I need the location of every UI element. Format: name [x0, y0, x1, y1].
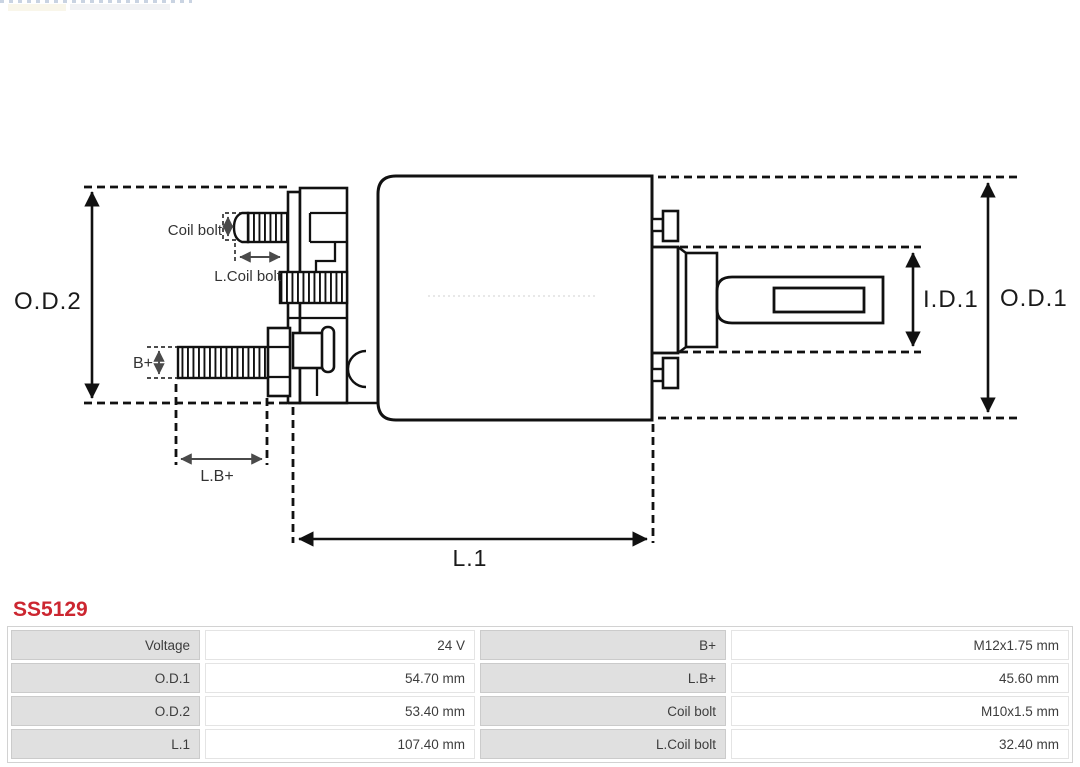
spec-label-coil-bolt: Coil bolt	[480, 696, 726, 726]
spec-value-coil-bolt: M10x1.5 mm	[731, 696, 1069, 726]
lcoil-bolt-thread	[280, 272, 347, 303]
product-drawing-page: O.D.2 O.D.1 I.D.1 L.1 Coil bolt L.Coil b…	[0, 0, 1080, 767]
spec-value-voltage: 24 V	[205, 630, 475, 660]
plunger-slot	[774, 288, 864, 312]
spec-label-lbplus: L.B+	[480, 663, 726, 693]
coil-bolt-head	[234, 213, 248, 242]
bplus-label: B+	[133, 355, 153, 372]
lcoil-bolt-label: L.Coil bolt	[214, 268, 282, 285]
bplus-nut	[268, 328, 290, 396]
spec-value-lbplus: 45.60 mm	[731, 663, 1069, 693]
spec-label-od1: O.D.1	[11, 663, 200, 693]
solenoid-part	[178, 176, 883, 420]
terminal-top-inner	[652, 219, 663, 231]
terminal-bottom-outer	[663, 358, 678, 388]
spec-label-bplus: B+	[480, 630, 726, 660]
solenoid-body	[378, 176, 652, 420]
spec-value-lcoil-bolt: 32.40 mm	[731, 729, 1069, 759]
solenoid-technical-drawing: O.D.2 O.D.1 I.D.1 L.1 Coil bolt L.Coil b…	[0, 0, 1080, 596]
table-row: O.D.2 53.40 mm Coil bolt M10x1.5 mm	[11, 696, 1069, 726]
spec-value-l1: 107.40 mm	[205, 729, 475, 759]
id1-label: I.D.1	[923, 286, 979, 313]
spec-label-l1: L.1	[11, 729, 200, 759]
terminal-top-outer	[663, 211, 678, 241]
table-row: Voltage 24 V B+ M12x1.75 mm	[11, 630, 1069, 660]
terminal-bottom-inner	[652, 369, 663, 381]
table-row: O.D.1 54.70 mm L.B+ 45.60 mm	[11, 663, 1069, 693]
boot-arc	[348, 351, 366, 387]
product-code-link[interactable]: SS5129	[13, 598, 88, 622]
od1-label: O.D.1	[1000, 285, 1068, 312]
lbplus-label: L.B+	[200, 468, 233, 485]
coil-bolt-thread	[248, 213, 292, 242]
spec-table: Voltage 24 V B+ M12x1.75 mm O.D.1 54.70 …	[7, 626, 1073, 763]
spec-value-od1: 54.70 mm	[205, 663, 475, 693]
l1-label: L.1	[453, 545, 488, 571]
spec-value-od2: 53.40 mm	[205, 696, 475, 726]
contact-washer	[322, 327, 334, 372]
plunger-collar	[686, 253, 717, 347]
plunger-boss	[652, 247, 678, 353]
dimension-arrows-minor	[159, 217, 280, 459]
contact-stud-block	[293, 333, 325, 368]
spec-label-od2: O.D.2	[11, 696, 200, 726]
coil-bolt-label: Coil bolt	[168, 222, 223, 239]
table-row: L.1 107.40 mm L.Coil bolt 32.40 mm	[11, 729, 1069, 759]
od2-label: O.D.2	[14, 288, 82, 315]
bplus-bolt-thread	[178, 347, 268, 378]
spec-label-voltage: Voltage	[11, 630, 200, 660]
spec-label-lcoil-bolt: L.Coil bolt	[480, 729, 726, 759]
spec-value-bplus: M12x1.75 mm	[731, 630, 1069, 660]
